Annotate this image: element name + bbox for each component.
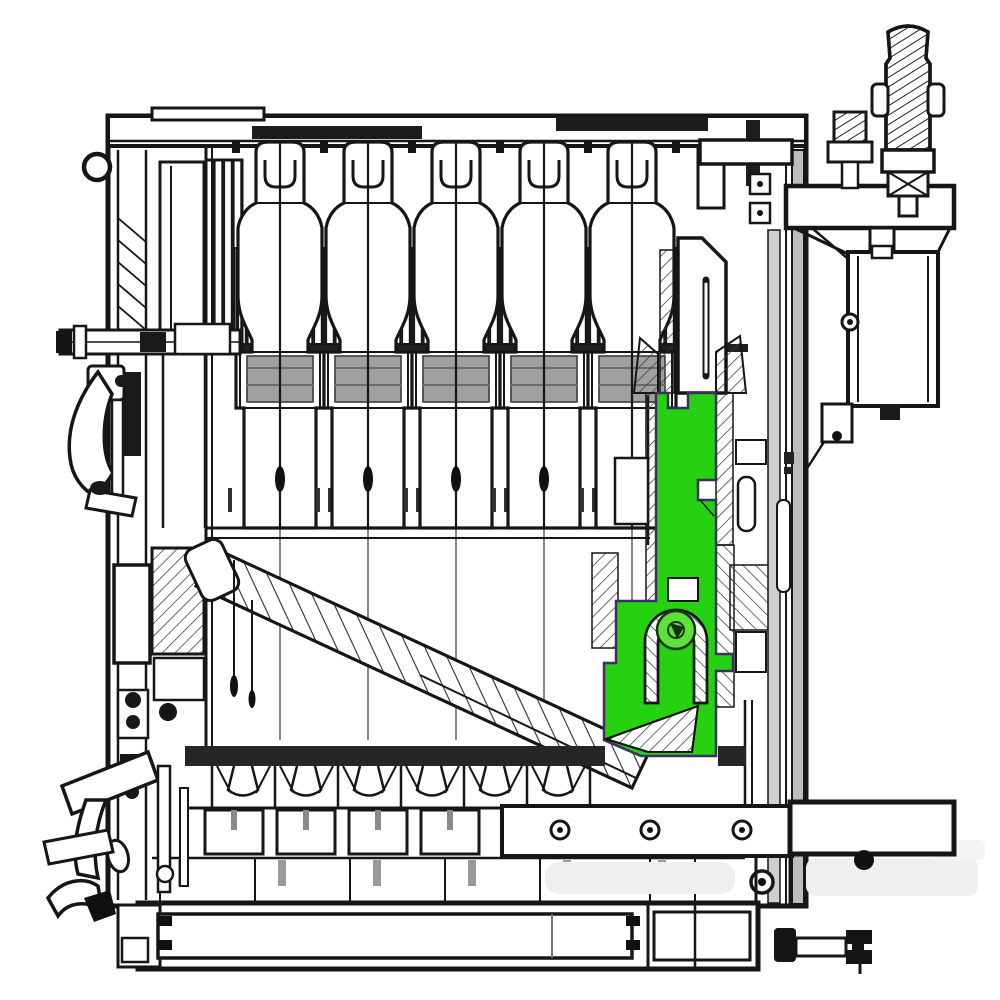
- boiler-cross-section-drawing: [0, 0, 1000, 1000]
- top-dark-bar-left: [252, 126, 422, 139]
- front-door-slot: [114, 565, 150, 663]
- top-dark-bar-right: [556, 117, 708, 131]
- ash-pan: [158, 914, 632, 958]
- hinge-eye: [84, 154, 110, 180]
- right-casing-band: [792, 150, 804, 904]
- hinge-pin-lower: [126, 715, 140, 729]
- link-bar: [700, 140, 792, 164]
- base-assembly: [118, 903, 758, 969]
- grate-plate: [185, 746, 605, 766]
- hinge-pin-upper: [125, 692, 141, 708]
- rail-end-bolt: [854, 850, 874, 870]
- front-column-panel: [160, 162, 204, 348]
- flue-outlet-duct: [790, 802, 954, 854]
- drawing-canvas: [0, 0, 1000, 1000]
- top-step: [152, 108, 264, 120]
